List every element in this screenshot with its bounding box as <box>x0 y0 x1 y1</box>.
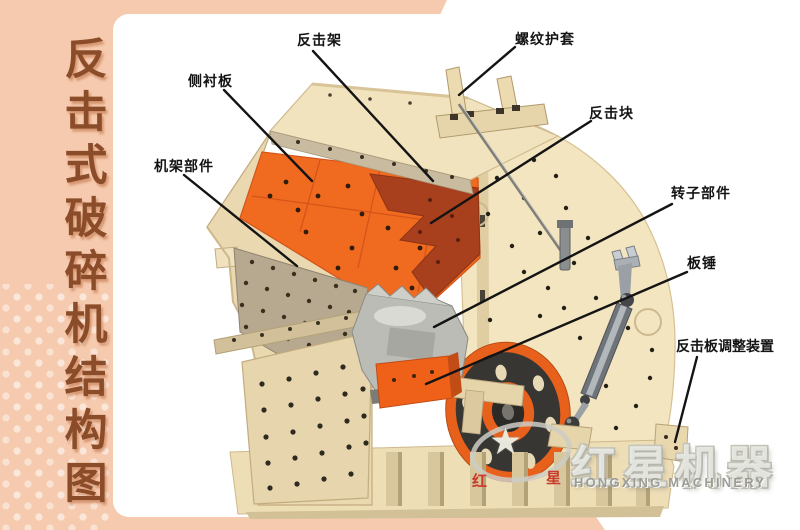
label-blow-bar: 板锤 <box>687 253 717 273</box>
adjuster-bracket <box>654 424 688 462</box>
crusher-illustration <box>0 0 800 530</box>
base-ribs-front <box>470 452 570 506</box>
label-rotor-parts: 转子部件 <box>671 183 731 203</box>
label-impact-plate-adjuster: 反击板调整装置 <box>676 336 774 356</box>
label-threaded-sleeve: 螺纹护套 <box>515 29 575 49</box>
label-impact-frame: 反击架 <box>297 30 342 50</box>
label-impact-block: 反击块 <box>589 103 634 123</box>
label-frame-parts: 机架部件 <box>154 156 214 176</box>
label-side-liner-plate: 侧衬板 <box>188 71 233 91</box>
